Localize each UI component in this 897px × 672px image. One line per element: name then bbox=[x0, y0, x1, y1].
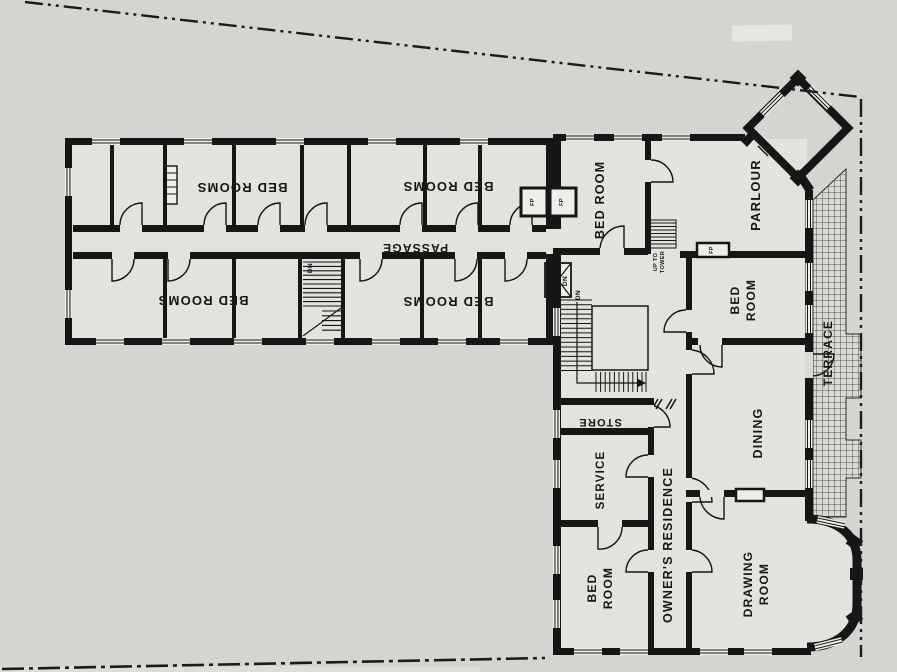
label-service: SERVICE bbox=[595, 451, 607, 510]
label-fp-left: FP bbox=[530, 198, 536, 206]
label-up-to-tower-1: UP TO bbox=[653, 252, 659, 271]
label-dn-main-1: DN bbox=[562, 276, 569, 286]
label-bed-room-north: BED ROOM bbox=[593, 161, 607, 239]
label-bed-rooms-nw: BED ROOMS bbox=[197, 180, 288, 195]
label-bed-rooms-sw: BED ROOMS bbox=[158, 293, 249, 308]
label-drawing-room-1: DRAWING bbox=[741, 551, 755, 617]
label-bed-room-east-2: ROOM bbox=[744, 279, 758, 321]
label-bed-room-south-1: BED bbox=[585, 574, 599, 603]
label-dn-main-2: DN bbox=[575, 290, 582, 300]
label-fp-parlour: FP bbox=[709, 246, 715, 254]
label-fp-right: FP bbox=[559, 198, 565, 206]
label-terrace: TERRACE bbox=[821, 320, 835, 386]
label-bed-room-south-2: ROOM bbox=[601, 567, 615, 609]
floor-plan-page: BED ROOMS BED ROOMS PASSAGE BED ROOMS BE… bbox=[0, 0, 897, 672]
label-dn-left-stair: DN bbox=[307, 263, 314, 273]
label-parlour: PARLOUR bbox=[748, 159, 763, 231]
label-dining: DINING bbox=[751, 408, 765, 459]
label-bed-room-east-1: BED bbox=[728, 286, 742, 315]
label-store: STORE bbox=[578, 416, 622, 428]
label-bed-rooms-se: BED ROOMS bbox=[403, 294, 494, 309]
label-up-to-tower-2: TOWER bbox=[660, 251, 666, 273]
label-bed-rooms-ne: BED ROOMS bbox=[403, 179, 494, 194]
floor-plan-drawing: BED ROOMS BED ROOMS PASSAGE BED ROOMS BE… bbox=[0, 0, 897, 672]
label-passage: PASSAGE bbox=[382, 241, 448, 255]
label-owners-residence: OWNER'S RESIDENCE bbox=[661, 467, 675, 623]
label-drawing-room-2: ROOM bbox=[757, 563, 771, 605]
